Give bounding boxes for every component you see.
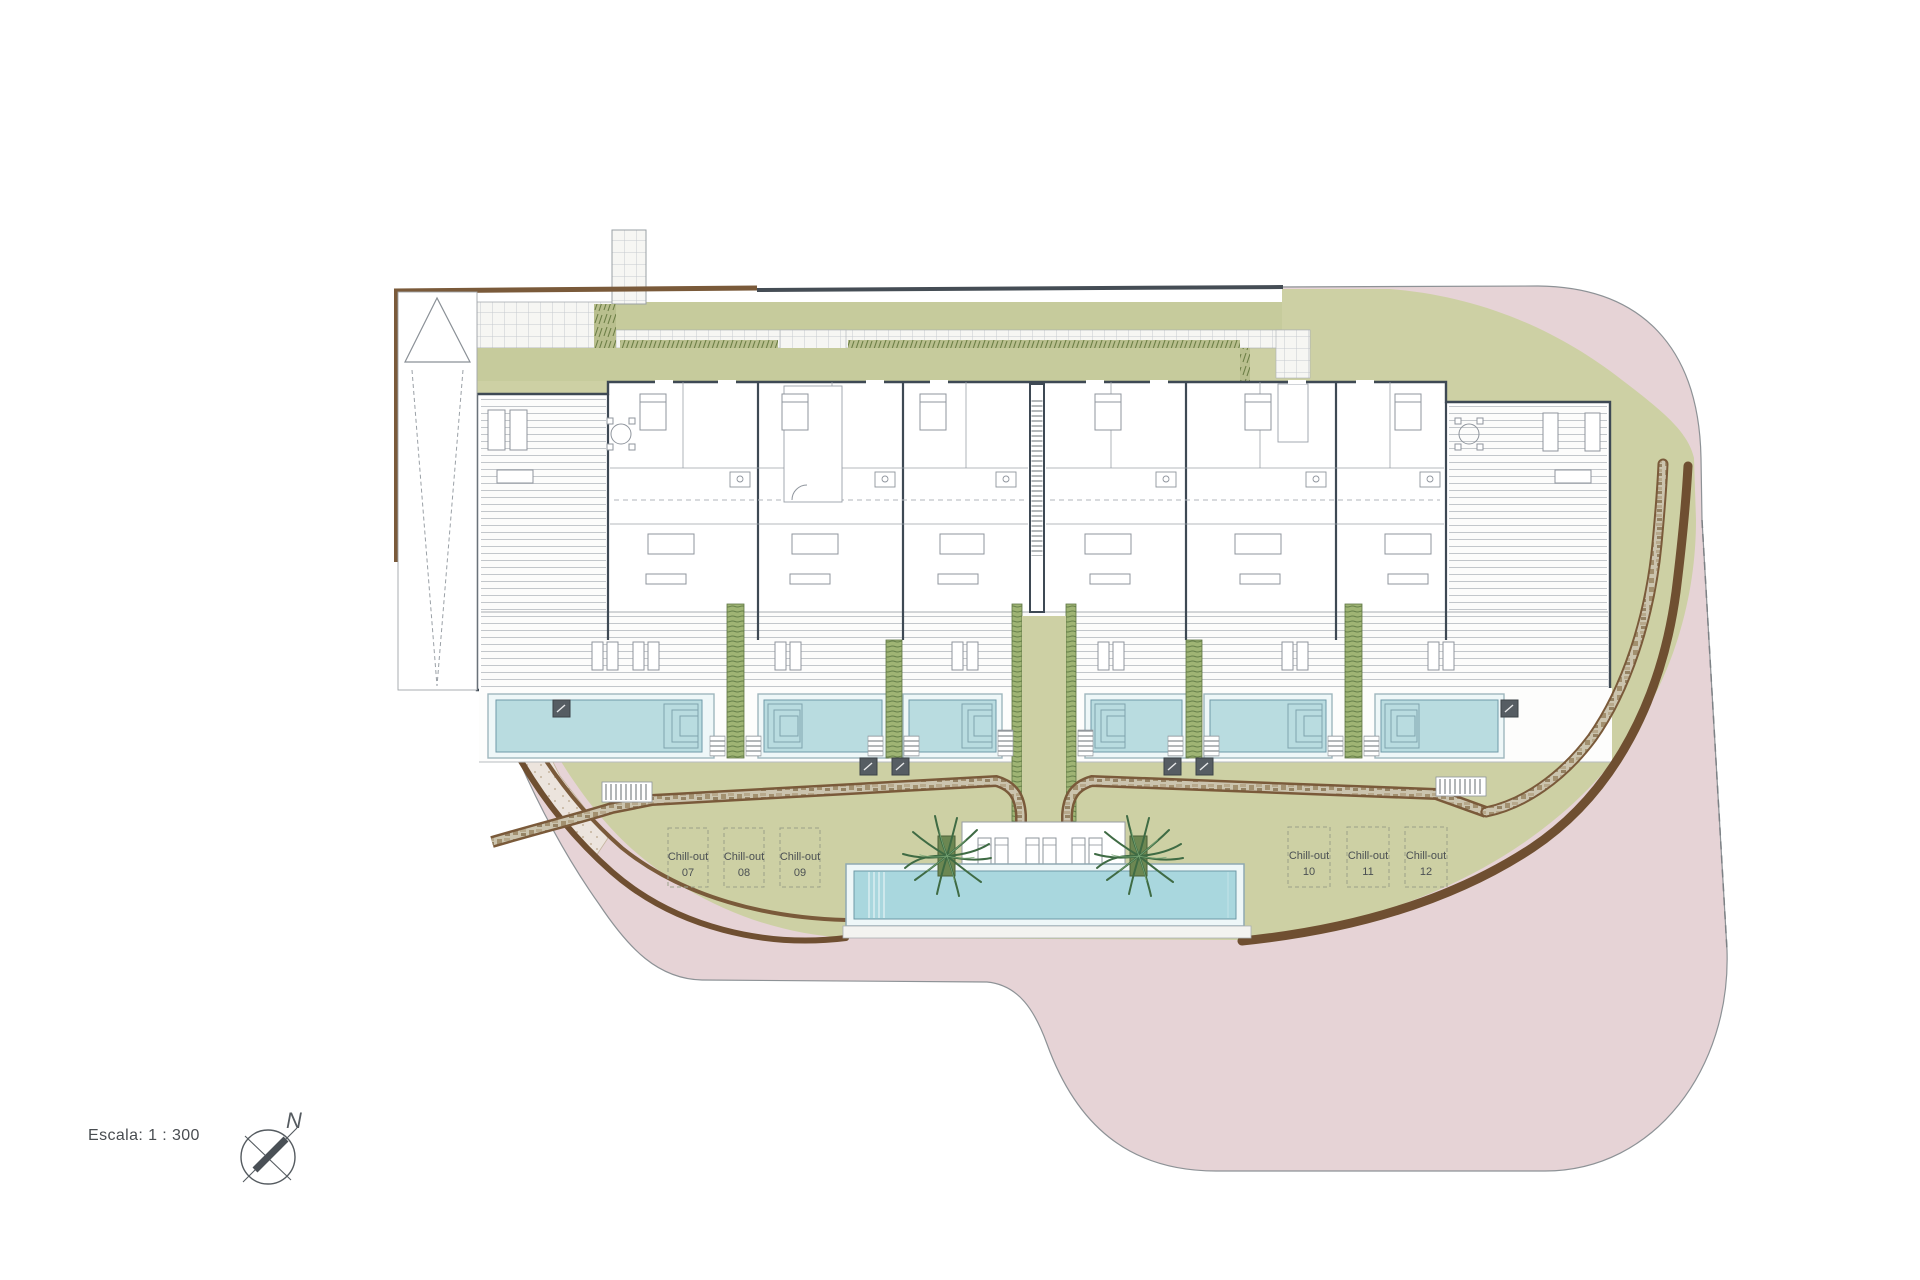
communal-pool bbox=[843, 864, 1251, 938]
hedge-patch-west bbox=[594, 304, 616, 353]
site-boundary-top-brown bbox=[394, 288, 757, 291]
roof-planting-strip bbox=[477, 348, 1240, 381]
scale-label: Escala: 1 : 300 bbox=[88, 1127, 200, 1144]
chill-out-10-number: 10 bbox=[1303, 866, 1315, 878]
site-plan-drawing: Chill-out 07 Chill-out 08 Chill-out 09 C… bbox=[0, 0, 1920, 1280]
central-walkway bbox=[1022, 616, 1066, 834]
chill-out-08-label: Chill-out bbox=[724, 851, 764, 863]
compass-needle bbox=[255, 1139, 286, 1170]
private-pool-1 bbox=[488, 694, 714, 758]
chill-out-12-label: Chill-out bbox=[1406, 850, 1446, 862]
chill-out-09-label: Chill-out bbox=[780, 851, 820, 863]
roof-planting-strip-upper bbox=[616, 302, 1282, 330]
north-compass: N bbox=[241, 1108, 302, 1184]
chill-out-08-number: 08 bbox=[738, 867, 750, 879]
chill-out-11-label: Chill-out bbox=[1348, 850, 1388, 862]
central-stair-treads bbox=[1032, 398, 1043, 556]
chill-out-07-label: Chill-out bbox=[668, 851, 708, 863]
private-pool-5 bbox=[1204, 694, 1332, 758]
chill-out-09-number: 09 bbox=[794, 867, 806, 879]
garden-stairs-right bbox=[1436, 777, 1486, 796]
entrance-court-right bbox=[1276, 330, 1310, 378]
chill-out-11-number: 11 bbox=[1362, 866, 1373, 878]
chill-out-10-label: Chill-out bbox=[1289, 850, 1329, 862]
compass-north-label: N bbox=[286, 1108, 302, 1133]
entrance-hall-right bbox=[1278, 384, 1308, 442]
garden-stairs-left bbox=[602, 782, 652, 802]
ramp-zone-west bbox=[398, 292, 477, 690]
site-plan-page: Chill-out 07 Chill-out 08 Chill-out 09 C… bbox=[0, 0, 1920, 1280]
private-pool-6 bbox=[1375, 694, 1504, 758]
chill-out-07-number: 07 bbox=[682, 867, 694, 879]
grid-tower bbox=[612, 230, 646, 304]
chill-out-12-number: 12 bbox=[1420, 866, 1432, 878]
